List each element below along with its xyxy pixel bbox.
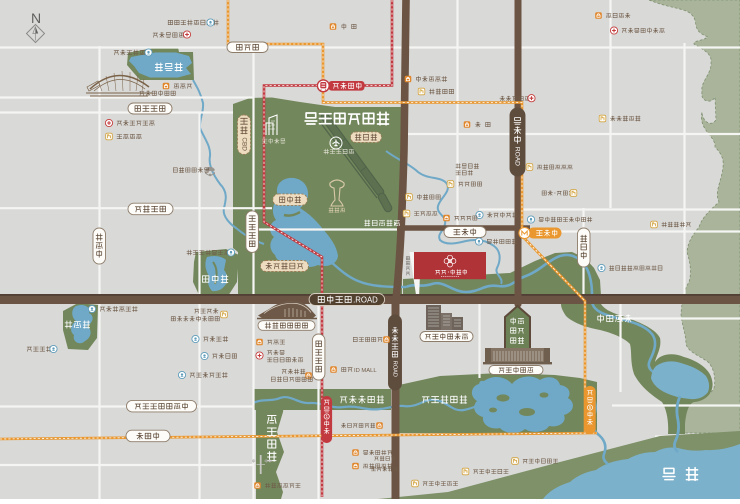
svg-text:ROAD: ROAD — [391, 361, 397, 377]
svg-text:ID MALL: ID MALL — [354, 368, 377, 374]
svg-text:.ROAD: .ROAD — [353, 296, 378, 305]
svg-text:›: › — [394, 218, 397, 228]
svg-text:ROAD: ROAD — [514, 147, 521, 166]
svg-text:N: N — [31, 10, 41, 26]
svg-text:CBD: CBD — [240, 137, 247, 151]
